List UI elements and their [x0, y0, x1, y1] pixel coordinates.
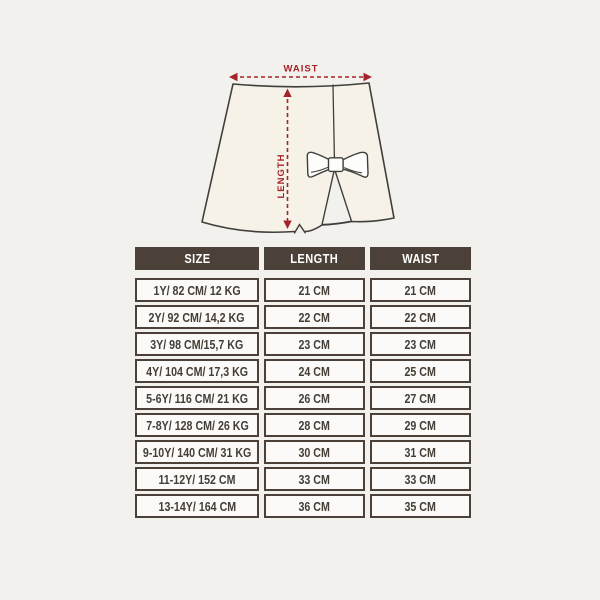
size-cell: 3Y/ 98 CM/15,7 KG: [135, 332, 259, 356]
header-size: SIZE: [135, 247, 259, 270]
waist-cell: 23 CM: [370, 332, 471, 356]
header-length-label: LENGTH: [290, 251, 338, 266]
waist-cell: 29 CM: [370, 413, 471, 437]
header-waist: WAIST: [370, 247, 471, 270]
header-length: LENGTH: [264, 247, 365, 270]
waist-cell: 31 CM: [370, 440, 471, 464]
size-table: SIZE LENGTH WAIST 1Y/ 82 CM/ 12 KG 21 CM…: [135, 247, 471, 521]
size-cell: 9-10Y/ 140 CM/ 31 KG: [135, 440, 259, 464]
length-cell: 22 CM: [264, 305, 365, 329]
waist-dimension-label: WAIST: [283, 64, 318, 75]
waist-cell: 35 CM: [370, 494, 471, 518]
size-chart-infographic: WAIST LENGTH SIZE LENGTH WAIST 1Y/ 82 CM…: [0, 0, 600, 600]
size-cell: 5-6Y/ 116 CM/ 21 KG: [135, 386, 259, 410]
length-cell: 23 CM: [264, 332, 365, 356]
length-cell: 24 CM: [264, 359, 365, 383]
length-cell: 26 CM: [264, 386, 365, 410]
length-cell: 28 CM: [264, 413, 365, 437]
size-cell: 7-8Y/ 128 CM/ 26 KG: [135, 413, 259, 437]
length-cell: 30 CM: [264, 440, 365, 464]
waist-cell: 21 CM: [370, 278, 471, 302]
length-dimension-label: LENGTH: [276, 153, 287, 198]
waist-dimension-line: WAIST: [229, 64, 372, 82]
length-cell: 21 CM: [264, 278, 365, 302]
waist-cell: 25 CM: [370, 359, 471, 383]
arrow-left-icon: [229, 73, 238, 81]
waist-cell: 33 CM: [370, 467, 471, 491]
header-waist-label: WAIST: [402, 251, 439, 266]
length-cell: 36 CM: [264, 494, 365, 518]
header-size-label: SIZE: [184, 251, 210, 266]
waist-cell: 27 CM: [370, 386, 471, 410]
garment-diagram: WAIST LENGTH: [0, 0, 600, 245]
arrow-right-icon: [364, 73, 373, 81]
size-cell: 11-12Y/ 152 CM: [135, 467, 259, 491]
length-cell: 33 CM: [264, 467, 365, 491]
size-cell: 13-14Y/ 164 CM: [135, 494, 259, 518]
size-cell: 2Y/ 92 CM/ 14,2 KG: [135, 305, 259, 329]
size-cell: 1Y/ 82 CM/ 12 KG: [135, 278, 259, 302]
waist-cell: 22 CM: [370, 305, 471, 329]
size-cell: 4Y/ 104 CM/ 17,3 KG: [135, 359, 259, 383]
